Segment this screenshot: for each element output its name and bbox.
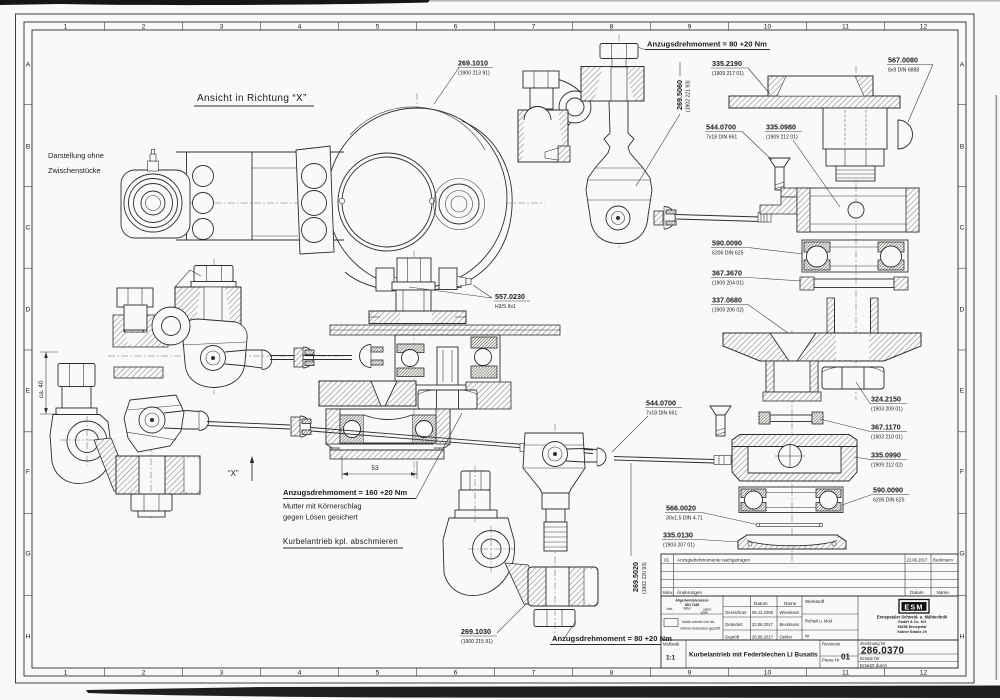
svg-text:4: 4	[298, 23, 302, 30]
svg-text:Maße werden bei Ab-: Maße werden bei Ab-	[682, 620, 716, 624]
svg-text:A: A	[26, 61, 31, 68]
svg-text:544.0700: 544.0700	[646, 399, 676, 408]
svg-text:D: D	[26, 306, 31, 313]
svg-text:367.1170: 367.1170	[871, 423, 901, 432]
svg-text:1: 1	[64, 670, 68, 677]
svg-text:Anzugsdrehmomente nachgetragen: Anzugsdrehmomente nachgetragen	[677, 557, 750, 562]
svg-text:Geprüft: Geprüft	[725, 635, 740, 640]
svg-text:Anzugsdrehmoment = 160 +20 Nm: Anzugsdrehmoment = 160 +20 Nm	[283, 488, 407, 497]
svg-text:2: 2	[142, 670, 146, 677]
svg-text:(1909 212 01): (1909 212 01)	[766, 135, 798, 141]
svg-text:Nr: Nr	[805, 634, 810, 639]
svg-text:269.1010: 269.1010	[458, 59, 488, 68]
svg-text:ESM: ESM	[904, 602, 923, 611]
svg-text:Name: Name	[937, 590, 950, 595]
svg-text:Mutter mit Körnerschlag: Mutter mit Körnerschlag	[283, 502, 361, 511]
svg-text:5: 5	[376, 670, 380, 677]
svg-text:2: 2	[142, 23, 146, 30]
svg-text:590.0090: 590.0090	[712, 239, 742, 248]
svg-text:B: B	[26, 143, 31, 150]
svg-text:367.3670: 367.3670	[712, 269, 742, 278]
svg-text:(1909 217 01): (1909 217 01)	[712, 71, 744, 77]
svg-text:GmbH & Co. KG: GmbH & Co. KG	[898, 620, 926, 624]
svg-text:G: G	[25, 550, 30, 557]
svg-text:22.06.2017: 22.06.2017	[907, 557, 929, 562]
svg-text:G: G	[959, 550, 964, 557]
svg-text:C: C	[26, 224, 31, 231]
svg-text:H: H	[960, 633, 965, 640]
svg-text:1: 1	[64, 23, 68, 30]
svg-text:F: F	[960, 468, 964, 475]
svg-text:335.2190: 335.2190	[712, 59, 742, 68]
svg-text:Pause Nr: Pause Nr	[822, 658, 840, 663]
svg-text:-fein-: -fein-	[666, 607, 673, 611]
svg-text:269.1030: 269.1030	[461, 627, 491, 636]
svg-text:10: 10	[764, 670, 772, 677]
svg-text:30x1,5 DIN 4.71: 30x1,5 DIN 4.71	[666, 516, 703, 522]
svg-text:5: 5	[376, 23, 380, 30]
svg-text:H3/S 8x1: H3/S 8x1	[495, 304, 516, 310]
svg-text:(1903 207 01): (1903 207 01)	[663, 543, 695, 549]
svg-text:(1909 204 01): (1909 204 01)	[712, 281, 744, 287]
svg-text:11: 11	[842, 23, 849, 30]
svg-text:Datum: Datum	[910, 590, 924, 595]
svg-text:269.5020: 269.5020	[631, 562, 640, 592]
svg-text:Beckmann: Beckmann	[933, 557, 953, 562]
svg-text:Ersetzt durch: Ersetzt durch	[860, 663, 888, 668]
svg-text:(1900 213 91): (1900 213 91)	[458, 71, 490, 77]
svg-text:Ersatz für: Ersatz für	[860, 656, 880, 661]
svg-text:590.0090: 590.0090	[873, 486, 903, 495]
svg-text:Ennepetaler Schneid- u. Mähtec: Ennepetaler Schneid- u. Mähtechnik	[877, 614, 948, 619]
svg-text:12: 12	[920, 23, 928, 30]
svg-text:58256 Ennepetal: 58256 Ennepetal	[898, 625, 927, 629]
svg-text:-grob-: -grob-	[700, 611, 709, 615]
svg-text:335.0980: 335.0980	[766, 123, 796, 132]
svg-text:Beckmann: Beckmann	[780, 622, 800, 627]
svg-text:(1902 220 93): (1902 220 93)	[642, 562, 648, 594]
svg-text:566.0020: 566.0020	[666, 504, 696, 513]
svg-text:8: 8	[610, 23, 614, 30]
svg-text:Anzugsdrehmoment = 80 +20 Nm: Anzugsdrehmoment = 80 +20 Nm	[552, 634, 672, 643]
svg-text:3: 3	[220, 23, 224, 30]
svg-text:01: 01	[664, 557, 670, 562]
svg-text:A: A	[960, 61, 965, 68]
svg-text:Kurbelantrieb mit Federblechen: Kurbelantrieb mit Federblechen LI Busati…	[689, 652, 818, 659]
svg-text:H: H	[26, 633, 31, 640]
svg-text:Revisions: Revisions	[822, 642, 840, 647]
svg-text:(1909 206 02): (1909 206 02)	[712, 308, 744, 314]
svg-text:335.0990: 335.0990	[871, 451, 901, 460]
svg-text:Kölner Straße 29: Kölner Straße 29	[897, 630, 926, 634]
svg-text:11: 11	[842, 670, 849, 677]
svg-text:324.2150: 324.2150	[871, 395, 901, 404]
svg-text:567.0080: 567.0080	[888, 56, 918, 65]
svg-text:Ansicht in Richtung “X”: Ansicht in Richtung “X”	[197, 93, 307, 104]
svg-text:B: B	[960, 143, 965, 150]
svg-text:D: D	[960, 306, 965, 313]
svg-text:7x18 DIN 661: 7x18 DIN 661	[646, 411, 677, 417]
svg-text:6: 6	[454, 670, 458, 677]
svg-text:Gezeichnet: Gezeichnet	[725, 610, 747, 615]
svg-text:6206 DIN 625: 6206 DIN 625	[712, 251, 744, 257]
svg-text:Rohteil u. Mod: Rohteil u. Mod	[805, 619, 833, 624]
svg-text:F: F	[26, 468, 30, 475]
svg-text:Werkstoff: Werkstoff	[805, 599, 825, 604]
svg-text:(1903 209 01): (1903 209 01)	[871, 407, 903, 413]
svg-text:Anzugsdrehmoment = 80 +20 Nm: Anzugsdrehmoment = 80 +20 Nm	[647, 40, 767, 49]
svg-text:01: 01	[841, 653, 850, 662]
svg-text:E: E	[960, 387, 965, 394]
svg-text:gegen Lösen gesichert: gegen Lösen gesichert	[283, 513, 358, 522]
svg-text:Datum: Datum	[754, 601, 768, 606]
svg-text:nahme besonders geprüft: nahme besonders geprüft	[680, 627, 720, 631]
svg-text:557.0230: 557.0230	[495, 292, 525, 301]
svg-text:(1902 221 93): (1902 221 93)	[686, 80, 692, 112]
svg-text:Oehler: Oehler	[780, 635, 793, 640]
svg-text:4: 4	[298, 670, 302, 677]
svg-text:Wiesmann: Wiesmann	[780, 610, 800, 615]
svg-text:12: 12	[920, 670, 928, 677]
svg-text:53: 53	[371, 465, 379, 472]
svg-text:1:1: 1:1	[666, 655, 676, 662]
svg-text:10: 10	[764, 23, 772, 30]
svg-text:C: C	[960, 224, 965, 231]
svg-text:544.0700: 544.0700	[706, 123, 736, 132]
svg-text:7: 7	[532, 670, 536, 677]
svg-text:7: 7	[532, 23, 536, 30]
svg-text:8: 8	[610, 670, 614, 677]
svg-text:8x9 DIN 6888: 8x9 DIN 6888	[888, 68, 919, 74]
svg-text:(1903 210 01): (1903 210 01)	[871, 435, 903, 441]
svg-text:26.06.2017: 26.06.2017	[752, 635, 774, 640]
svg-text:Name: Name	[784, 601, 797, 606]
svg-text:ca. 40: ca. 40	[38, 380, 45, 398]
svg-text:(1909 212 02): (1909 212 02)	[871, 463, 903, 469]
svg-text:7x18 DIN 661: 7x18 DIN 661	[706, 135, 737, 141]
svg-text:(1900 215 91): (1900 215 91)	[461, 639, 493, 645]
svg-text:Darstellung ohne: Darstellung ohne	[48, 151, 104, 160]
svg-text:337.0680: 337.0680	[712, 296, 742, 305]
svg-text:3: 3	[220, 670, 224, 677]
svg-text:6: 6	[454, 23, 458, 30]
svg-text:6206 DIN 625: 6206 DIN 625	[873, 498, 905, 504]
svg-text:Index: Index	[663, 590, 674, 595]
svg-text:9: 9	[688, 23, 692, 30]
svg-text:Geändert: Geändert	[725, 622, 743, 627]
svg-text:22.06.2017: 22.06.2017	[752, 622, 774, 627]
svg-text:335.0130: 335.0130	[663, 531, 693, 540]
svg-text:mittel: mittel	[683, 607, 691, 611]
svg-text:Zwischenstücke: Zwischenstücke	[48, 166, 101, 175]
svg-text:E: E	[26, 387, 31, 394]
svg-text:269.5060: 269.5060	[675, 80, 684, 110]
svg-text:“X”: “X”	[228, 469, 239, 478]
svg-text:Änderungen: Änderungen	[677, 589, 702, 595]
svg-text:Kurbelantrieb kpl. abschmieren: Kurbelantrieb kpl. abschmieren	[283, 537, 398, 546]
svg-text:9: 9	[688, 670, 692, 677]
svg-text:05.12.2005: 05.12.2005	[752, 610, 774, 615]
